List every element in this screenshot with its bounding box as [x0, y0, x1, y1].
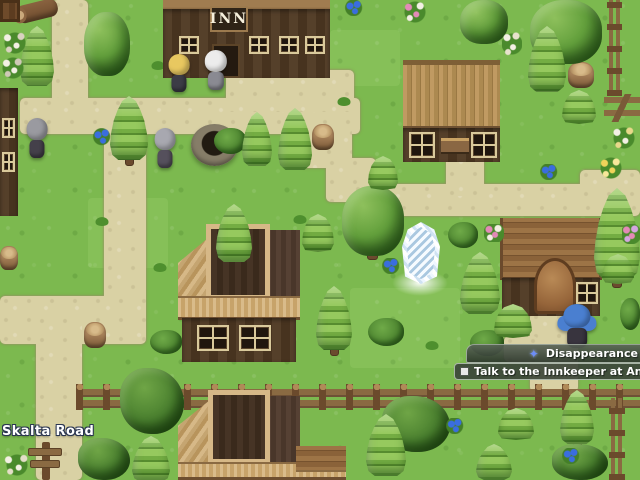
blue-flowers	[540, 164, 558, 180]
annex-roof	[296, 446, 346, 472]
inn-window	[249, 36, 269, 54]
quest-title: Disappearance	[546, 347, 638, 360]
shrub	[620, 298, 640, 330]
roof-eave	[178, 296, 300, 320]
grass-tuft	[424, 340, 440, 350]
leafy-tree	[460, 0, 508, 44]
tree-stump	[568, 62, 594, 88]
house-roof	[403, 60, 500, 130]
roof-panel	[208, 390, 270, 464]
house-window	[409, 132, 435, 158]
pink-flower-patch	[484, 224, 504, 242]
shrub	[214, 128, 246, 154]
inn-sign: INN	[210, 6, 248, 32]
blue-flowers	[92, 128, 112, 146]
pink-flower-patch	[402, 0, 428, 24]
quest-marker-icon: ✦	[529, 348, 539, 360]
south-house-annex	[296, 446, 346, 480]
white-flower-patch	[0, 30, 30, 56]
fence-gate	[604, 94, 640, 122]
blue-flowers	[344, 0, 364, 16]
cottage-window	[576, 282, 598, 304]
grass-tuft	[94, 216, 110, 226]
inn-window	[279, 36, 299, 54]
tree-stump	[312, 124, 334, 150]
game-viewport: INN	[0, 0, 640, 480]
portal-crystal-face	[407, 227, 435, 279]
leafy-tree-over-fence	[120, 368, 184, 434]
tree-stump	[0, 246, 18, 270]
annex-eave	[296, 470, 346, 480]
northeast-house	[403, 60, 500, 162]
leafy-tree-large	[342, 186, 404, 256]
npc-white-haired[interactable]	[202, 50, 230, 90]
west-building-edge	[0, 88, 18, 216]
south-house	[178, 388, 300, 480]
shrub	[368, 318, 404, 346]
yellow-flower-patch	[598, 156, 624, 180]
checkbox-icon	[460, 367, 469, 376]
quest-title-bar: ✦ Disappearance	[466, 344, 640, 363]
inn-window	[305, 36, 325, 54]
bush-large	[552, 444, 608, 480]
house-counter	[441, 138, 469, 154]
roof-eave	[178, 462, 300, 480]
inn-sign-text: INN	[210, 11, 248, 27]
white-flower-patch	[0, 452, 34, 478]
house-window	[197, 325, 229, 351]
map-location-label: Skalta Road	[2, 424, 94, 439]
npc-blonde-girl[interactable]	[166, 54, 192, 92]
fence-vertical-top	[607, 0, 622, 96]
npc-villager-well[interactable]	[152, 128, 178, 168]
npc-villager-west[interactable]	[24, 118, 50, 158]
inn-window	[179, 36, 199, 54]
white-flower-patch	[0, 56, 26, 80]
fence-vertical-bottom	[609, 398, 625, 480]
shrub	[448, 222, 478, 248]
wooden-crate	[0, 0, 20, 22]
grass-tuft	[152, 262, 168, 272]
house-window	[239, 325, 271, 351]
blue-flowers	[446, 418, 464, 434]
blue-flowers	[562, 448, 580, 464]
quest-tracker-panel: ✦ Disappearance Talk to the Innkeeper at…	[454, 344, 640, 380]
signpost-arm	[30, 460, 60, 468]
bush-large	[78, 438, 130, 480]
tree-stump	[84, 322, 106, 348]
quest-objective: Talk to the Innkeeper at Anemone V	[474, 365, 640, 378]
house-window	[471, 132, 497, 158]
grass-tuft	[336, 96, 352, 106]
white-flower-patch	[502, 28, 522, 60]
magic-portal[interactable]	[402, 222, 440, 284]
white-flower-patch	[610, 124, 638, 152]
quest-objective-bar: Talk to the Innkeeper at Anemone V	[454, 363, 640, 380]
window	[2, 152, 15, 172]
window	[2, 118, 15, 138]
pink-flower-patch	[622, 224, 640, 244]
east-cottage	[500, 218, 602, 316]
leafy-tree	[84, 12, 130, 76]
npc-blue-haired-girl[interactable]	[560, 304, 594, 348]
